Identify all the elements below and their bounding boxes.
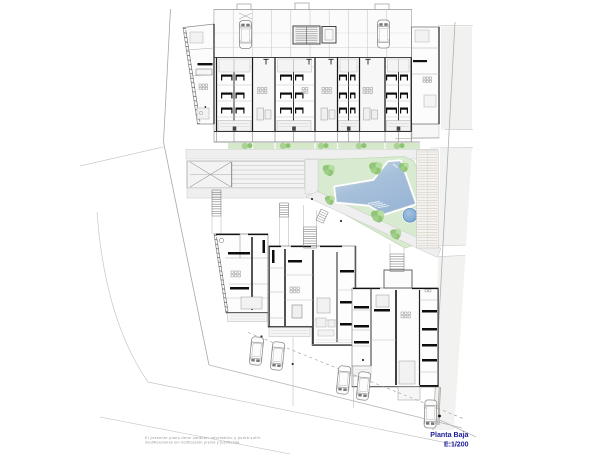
svg-text:Planta Baja: Planta Baja <box>430 431 468 439</box>
svg-text:modificaciones sin notificac: modificaciones sin notificación previa y… <box>145 440 241 444</box>
svg-text:E:1/200: E:1/200 <box>444 441 469 448</box>
svg-text:El presente plano tiene ca: El presente plano tiene carácter informa… <box>145 436 261 440</box>
